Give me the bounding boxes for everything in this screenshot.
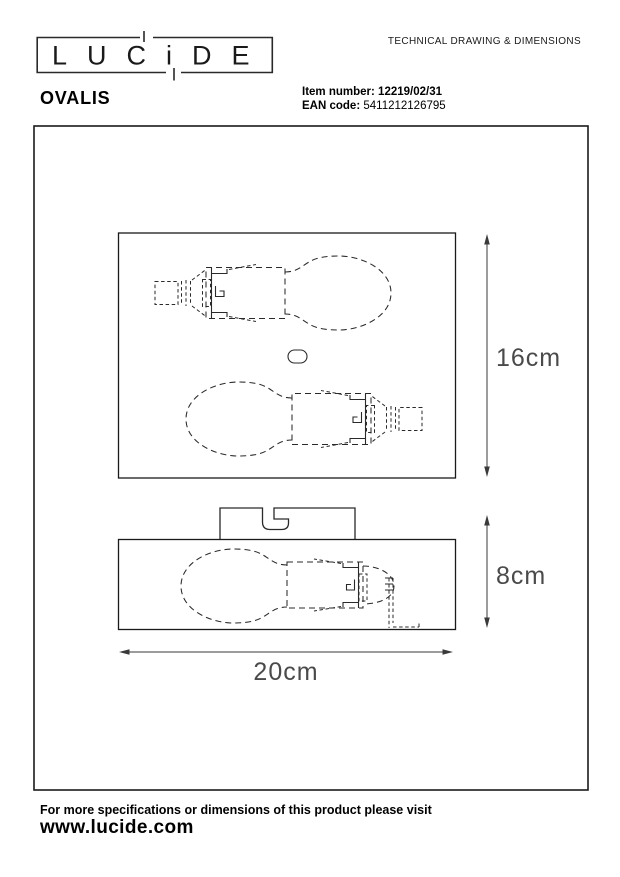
cable-entry-oval [288,350,307,363]
arrow-down-icon [484,467,490,478]
side-bulb-glass [181,549,287,623]
arrow-down-icon [484,618,490,629]
footer-website: www.lucide.com [40,817,194,839]
dimension-width-label: 20cm [253,658,318,686]
arrow-up-icon [484,234,490,245]
dimension-depth: 8cm [484,515,546,628]
arrow-right-icon [443,649,454,655]
arrow-up-icon [484,515,490,526]
side-lamp-holder [287,559,394,611]
front-view-drawing [119,233,456,478]
dimension-height: 16cm [484,234,561,477]
footer-note: For more specifications or dimensions of… [40,803,432,817]
dimension-height-label: 16cm [496,344,561,372]
dimension-depth-label: 8cm [496,562,546,590]
side-wire [389,578,419,630]
front-view-body [119,233,456,478]
technical-drawing: 16cm [0,0,620,877]
technical-drawing-page: LUCiDE TECHNICAL DRAWING & DIMENSIONS OV… [0,0,620,877]
mounting-bracket [220,508,355,540]
side-view-drawing [119,508,456,630]
bulb-assembly-upper [155,256,391,330]
arrow-left-icon [119,649,130,655]
bulb-assembly-lower [186,382,422,456]
drawing-frame [34,126,588,790]
dimension-width: 20cm [119,649,453,686]
